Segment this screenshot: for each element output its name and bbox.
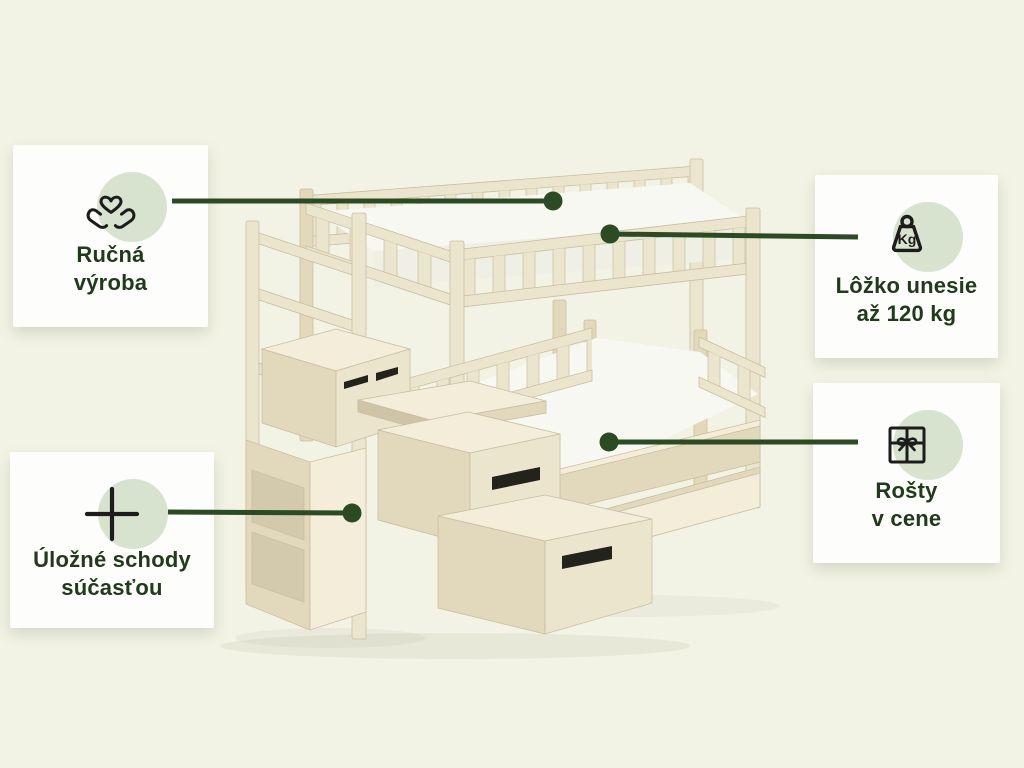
card-ulozne-schody: Úložné schody súčasťou	[10, 452, 214, 628]
card-title: Úložné schody súčasťou	[33, 546, 191, 602]
card-title: Rošty v cene	[872, 477, 942, 533]
card-title-line: až 120 kg	[836, 300, 978, 328]
card-icon-area	[875, 413, 939, 477]
card-title-line: Ručná	[74, 241, 147, 269]
gift-icon	[875, 413, 939, 477]
card-title: Lôžko unesie až 120 kg	[836, 272, 978, 328]
card-title-line: výroba	[74, 269, 147, 297]
card-title: Ručná výroba	[74, 241, 147, 297]
hands-holding-heart-icon	[79, 175, 143, 239]
card-title-line: Úložné schody	[33, 546, 191, 574]
card-rucna-vyroba: Ručná výroba	[13, 145, 208, 327]
plus-icon	[80, 482, 144, 546]
card-title-line: v cene	[872, 505, 942, 533]
card-rosty: Rošty v cene	[813, 383, 1000, 563]
card-icon-area	[79, 175, 143, 239]
card-icon-area	[80, 482, 144, 546]
card-title-line: Rošty	[872, 477, 942, 505]
card-icon-area: Kg	[875, 205, 939, 269]
infographic-page: Ručná výroba Úložné schody súčasťou Kg L…	[0, 0, 1024, 768]
card-title-line: Lôžko unesie	[836, 272, 978, 300]
kg-icon-label: Kg	[897, 231, 916, 247]
weight-kg-icon: Kg	[875, 205, 939, 269]
card-nosnost: Kg Lôžko unesie až 120 kg	[815, 175, 998, 358]
card-title-line: súčasťou	[33, 574, 191, 602]
